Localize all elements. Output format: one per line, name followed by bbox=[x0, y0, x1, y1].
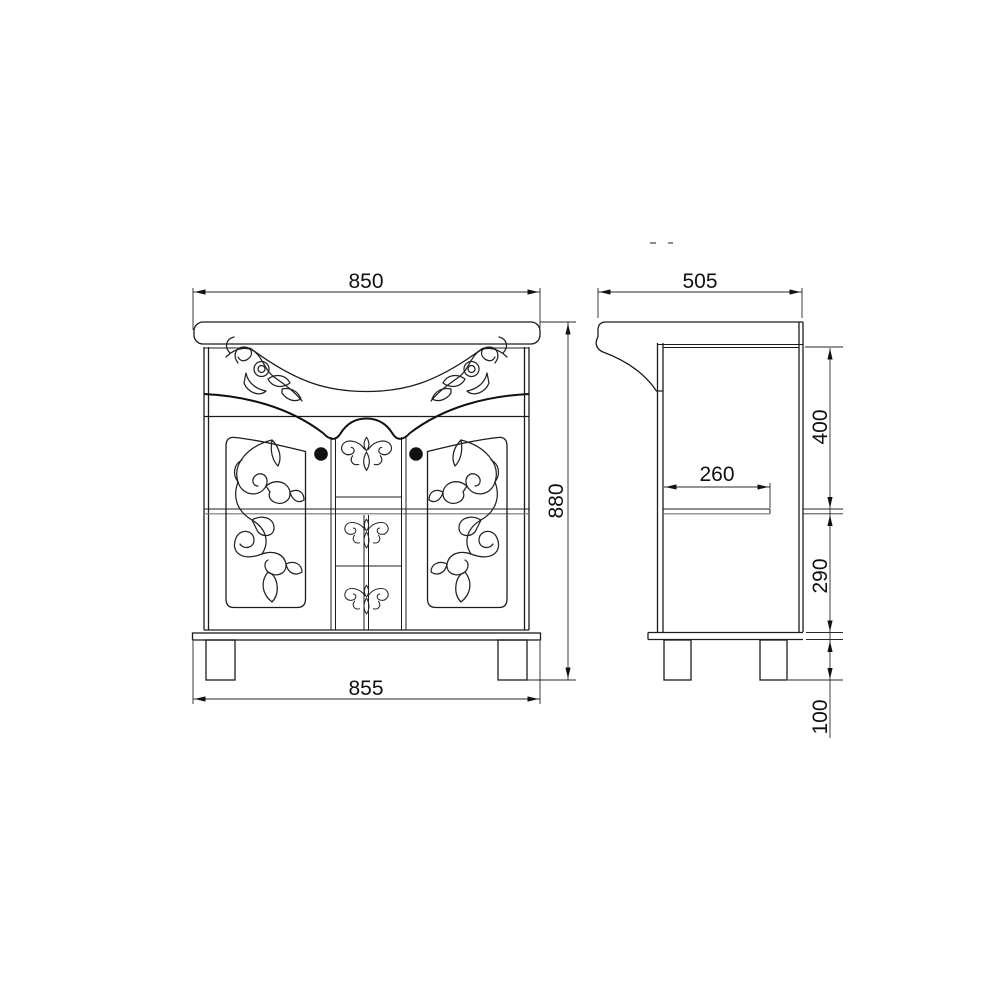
cabinet-sides-front bbox=[204, 347, 529, 630]
dimension-855: 855 bbox=[193, 641, 540, 704]
side-view bbox=[596, 322, 803, 680]
right-door-knob bbox=[409, 447, 423, 461]
right-door-scrollwork bbox=[429, 440, 499, 602]
side-front-leg bbox=[664, 640, 691, 680]
side-rear-leg bbox=[760, 640, 787, 680]
dim-label-leg-height: 100 bbox=[809, 699, 832, 734]
bottom-drawer-handle bbox=[345, 585, 388, 614]
left-door-scrollwork bbox=[234, 440, 304, 602]
front-view bbox=[193, 322, 541, 680]
front-panel-side bbox=[658, 343, 664, 632]
dim-label-lower-section: 290 bbox=[809, 558, 832, 593]
dimension-880: 880 bbox=[527, 322, 576, 680]
vanity-cabinet-drawing: 850 880 855 505 260 400 290 100 bbox=[0, 0, 1000, 1000]
dimension-chain-right: 400 290 100 bbox=[788, 347, 843, 738]
dimension-260: 260 bbox=[664, 463, 770, 508]
dim-label-front-height: 880 bbox=[545, 483, 568, 518]
countertop-side-top bbox=[598, 322, 803, 337]
countertop-front bbox=[194, 322, 540, 344]
dimension-850: 850 bbox=[193, 270, 540, 330]
plinth-front bbox=[193, 633, 541, 640]
dimension-505: 505 bbox=[598, 270, 802, 318]
left-corner-ornament bbox=[226, 337, 302, 401]
front-left-leg bbox=[206, 640, 235, 680]
dim-label-side-depth: 505 bbox=[682, 270, 717, 293]
shelf-side bbox=[663, 509, 770, 514]
middle-drawer-handle bbox=[345, 519, 388, 548]
top-drawer-handle bbox=[342, 437, 392, 470]
left-door-knob bbox=[314, 447, 328, 461]
countertop-lip-profile bbox=[596, 337, 663, 391]
dim-label-front-top-width: 850 bbox=[348, 270, 383, 293]
right-corner-ornament bbox=[431, 337, 507, 401]
back-panel-side bbox=[799, 322, 803, 632]
front-right-leg bbox=[498, 640, 527, 680]
technical-drawing-page: 850 880 855 505 260 400 290 100 bbox=[0, 0, 1000, 1000]
plinth-side bbox=[648, 633, 803, 640]
dim-label-front-bottom-width: 855 bbox=[348, 677, 383, 700]
dim-label-upper-section: 400 bbox=[809, 409, 832, 444]
dim-label-shelf-depth: 260 bbox=[699, 463, 734, 486]
